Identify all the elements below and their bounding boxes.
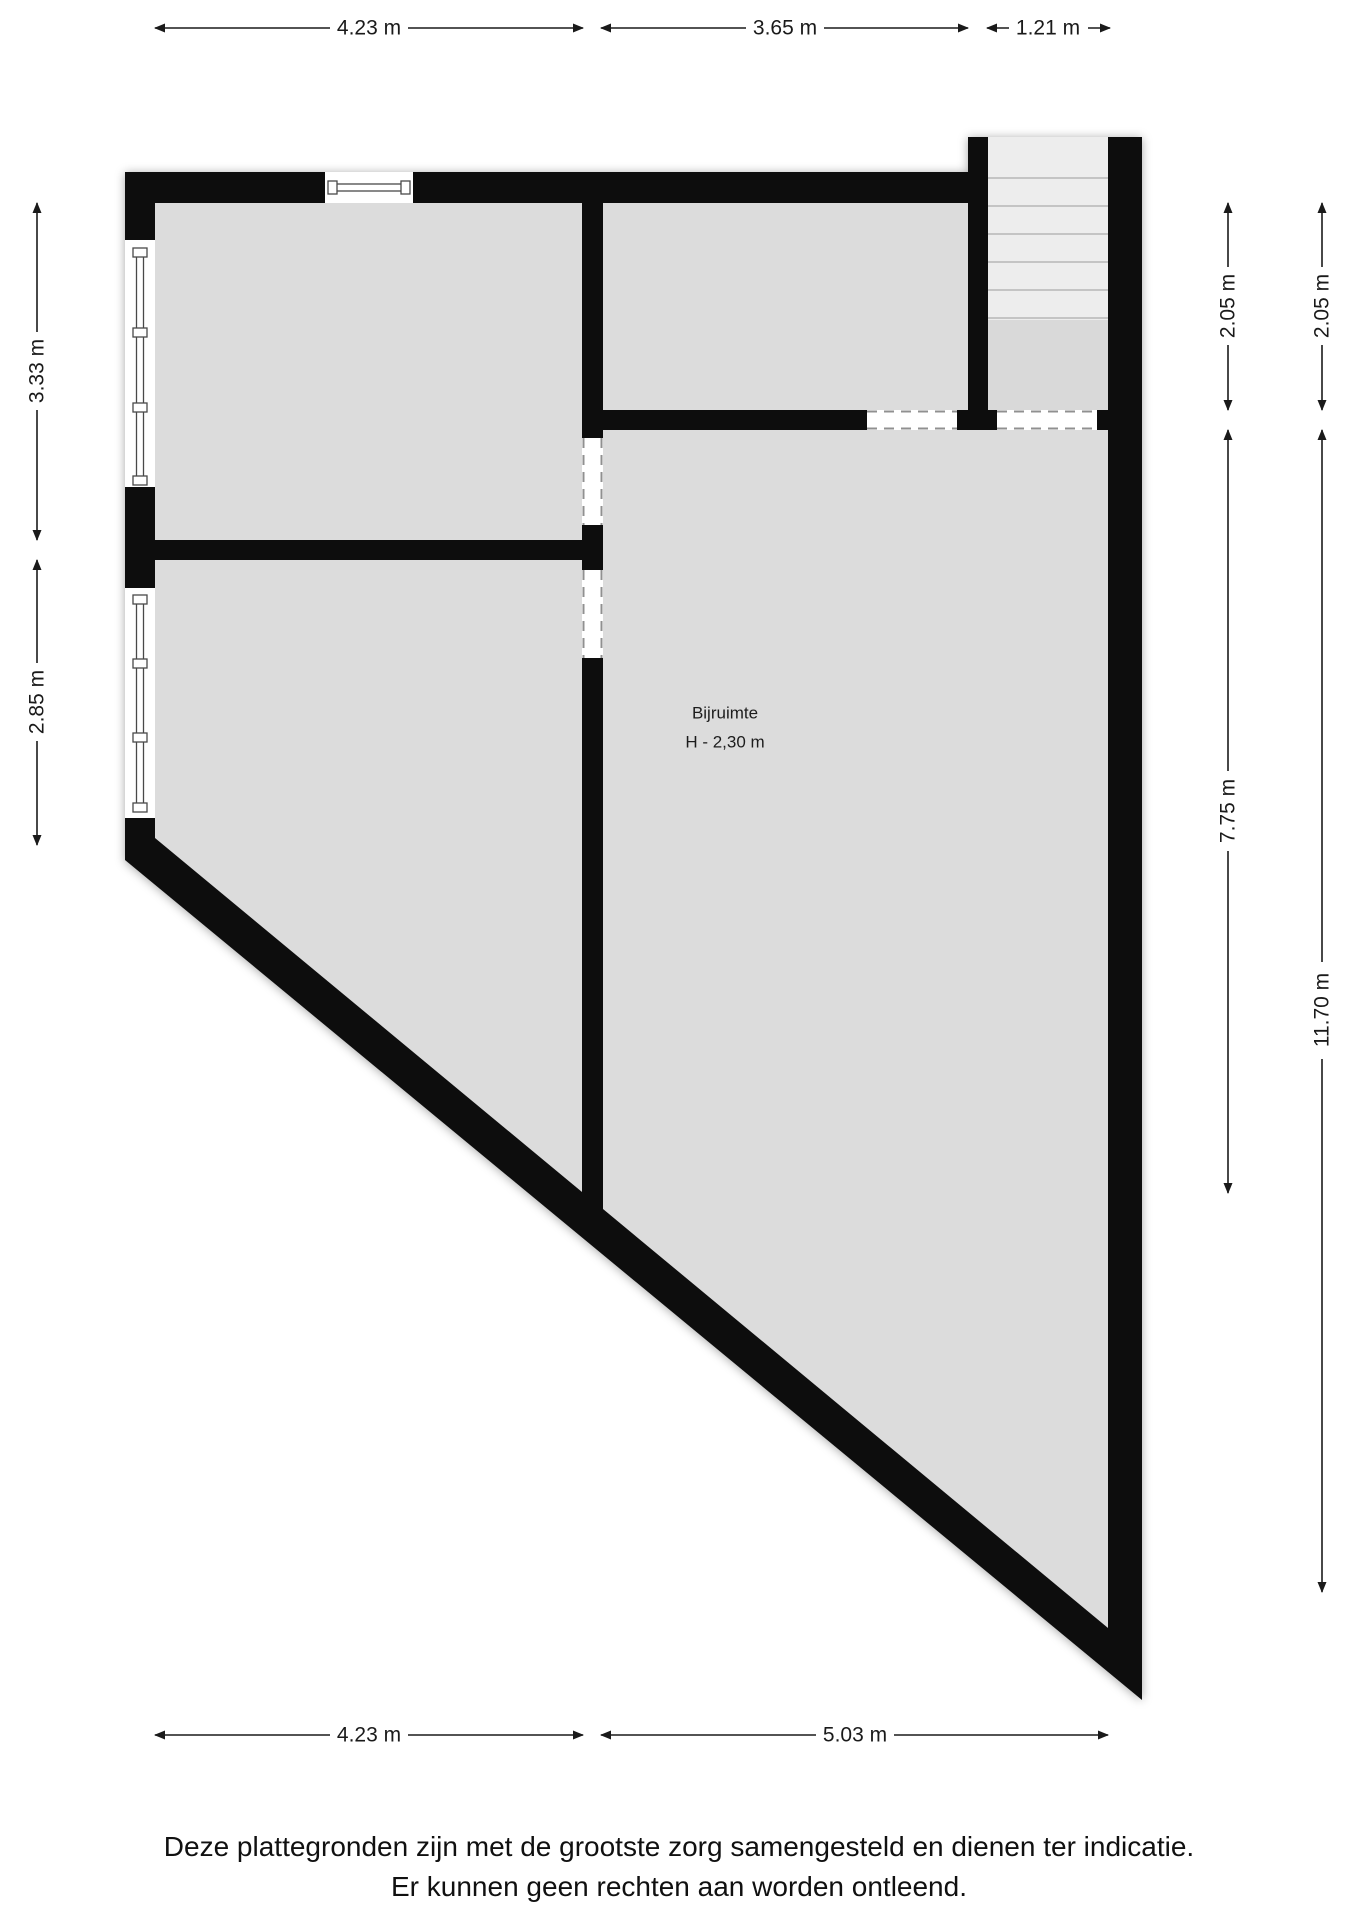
room-top-left-floor (155, 203, 582, 540)
building: Bijruimte H - 2,30 m (125, 137, 1142, 1700)
disclaimer-line-2: Er kunnen geen rechten aan worden ontlee… (391, 1871, 967, 1902)
dimension-label: 11.70 m (1311, 973, 1334, 1047)
floor-plan-page: Bijruimte H - 2,30 m 4.23 m 3.65 m 1.21 … (0, 0, 1358, 1920)
door-opening-middle-wall-lower (582, 570, 603, 658)
room-name-label: Bijruimte (692, 704, 758, 723)
door-opening-hall-left (867, 410, 957, 430)
room-height-label: H - 2,30 m (685, 733, 764, 752)
dimension-top-1: 4.23 m (155, 17, 583, 40)
dimension-label: 7.75 m (1217, 779, 1240, 843)
window-left-lower-icon (125, 588, 155, 818)
disclaimer-line-1: Deze plattegronden zijn met de grootste … (164, 1831, 1194, 1862)
disclaimer: Deze plattegronden zijn met de grootste … (164, 1831, 1194, 1902)
dimension-bottom-2: 5.03 m (601, 1724, 1108, 1747)
dimension-left-1: 3.33 m (26, 203, 49, 540)
dimension-right-2: 2.05 m (1311, 203, 1334, 410)
dimension-label: 2.85 m (26, 670, 49, 734)
door-opening-middle-wall-upper (582, 438, 603, 525)
dimension-right-4: 11.70 m (1311, 430, 1334, 1592)
dimension-left-2: 2.85 m (26, 560, 49, 845)
dimension-label: 3.65 m (753, 17, 817, 40)
floor-plan-canvas: Bijruimte H - 2,30 m 4.23 m 3.65 m 1.21 … (0, 0, 1358, 1920)
window-top-icon (325, 172, 413, 203)
dimension-label: 1.21 m (1016, 17, 1080, 40)
dimension-label: 3.33 m (26, 339, 49, 403)
stair-landing-area (988, 320, 1108, 410)
dimension-top-2: 3.65 m (601, 17, 968, 40)
dimension-label: 5.03 m (823, 1724, 887, 1747)
dimension-label: 2.05 m (1311, 274, 1334, 338)
dimension-bottom-1: 4.23 m (155, 1724, 583, 1747)
window-left-upper-icon (125, 240, 155, 487)
door-opening-under-stairs (997, 410, 1097, 430)
room-bottom-left-floor (155, 560, 582, 1192)
dimension-top-3: 1.21 m (987, 17, 1110, 40)
dimension-label: 4.23 m (337, 17, 401, 40)
dimension-label: 4.23 m (337, 1724, 401, 1747)
dimension-label: 2.05 m (1217, 274, 1240, 338)
staircase (988, 137, 1108, 410)
dimension-right-3: 7.75 m (1217, 430, 1240, 1193)
room-top-middle-floor (603, 203, 968, 410)
dimension-right-1: 2.05 m (1217, 203, 1240, 410)
stair-treads-area (988, 137, 1108, 320)
